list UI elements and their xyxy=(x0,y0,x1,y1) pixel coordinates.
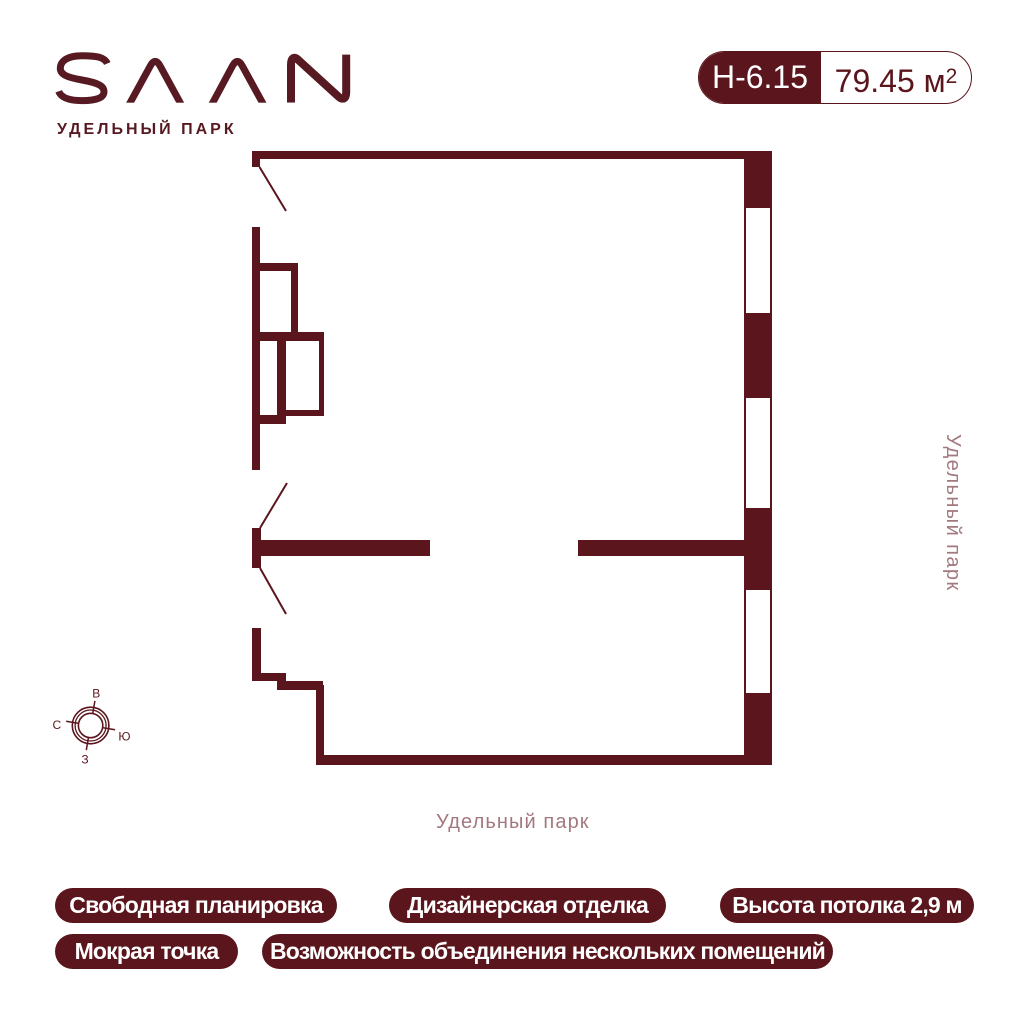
svg-text:З: З xyxy=(81,753,88,767)
svg-text:С: С xyxy=(52,718,61,732)
svg-text:Ю: Ю xyxy=(118,730,130,744)
svg-text:В: В xyxy=(92,687,100,701)
